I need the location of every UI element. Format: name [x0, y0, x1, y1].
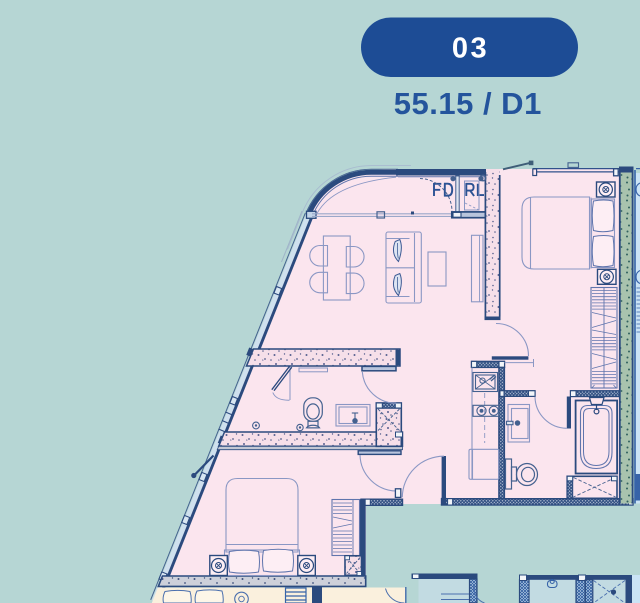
svg-text:55.15 / D1: 55.15 / D1	[394, 86, 542, 121]
svg-text:03: 03	[452, 33, 489, 65]
